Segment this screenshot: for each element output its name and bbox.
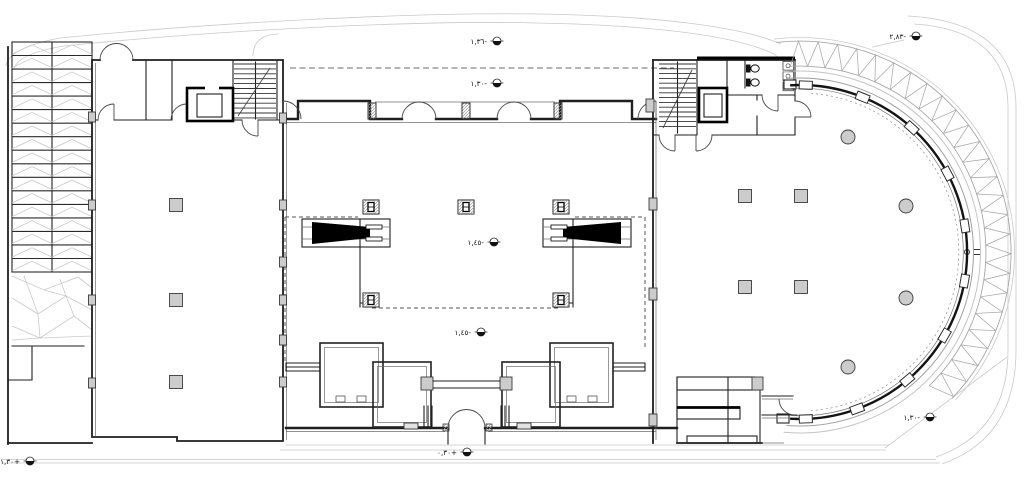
level-marker-terrace-northeast: ٢,٨٣- (890, 32, 923, 41)
benchmark-icon (924, 413, 937, 421)
wall-pilaster (649, 198, 657, 210)
terrace-arc-outer (784, 71, 981, 433)
wall-pilaster (89, 200, 96, 210)
level-marker-atrium: ١,٤٥- (468, 238, 501, 247)
storefront-pilaster-3 (554, 103, 562, 119)
level-marker-text: ١,٤٥- (455, 328, 472, 337)
level-marker-text: ١,٣٦- (471, 37, 488, 46)
column-round (899, 199, 913, 213)
wall-pilaster (280, 113, 287, 123)
level-marker-sidewalk-southwest: ١,٣٠+ (0, 457, 36, 466)
column-square (739, 281, 752, 294)
column-round (899, 291, 913, 305)
benchmark-icon (491, 37, 504, 45)
landscape-triangulation (12, 276, 92, 340)
wall-pilaster (280, 200, 287, 210)
column-hatched (553, 200, 569, 214)
escalator-west (302, 219, 390, 247)
curtain-wall-inner-face (791, 88, 963, 416)
site-corner-ne-inner (914, 24, 1008, 457)
wc-sink (783, 72, 794, 81)
benchmark-icon (461, 448, 474, 456)
curtain-mullion (959, 274, 969, 288)
column-square (170, 294, 183, 307)
level-marker-text: ٢,٨٣- (890, 32, 907, 41)
elevator-west-shaft (187, 88, 233, 121)
marker-leader-ne (872, 40, 904, 47)
curtain-mullion (960, 219, 970, 233)
storefront-pilaster-1 (368, 103, 376, 119)
hatch-band-outer-arc (776, 41, 1011, 399)
level-marker-text: ١,٤٥- (468, 238, 485, 247)
benchmark-icon (24, 457, 37, 465)
curtain-mullion (850, 403, 865, 415)
floor-plan-canvas: ١,٣٦-١,٣٠-١,٤٥-١,٤٥-٢,٨٣-١,٣٠-١,٣٠+٠,٣٠+ (0, 0, 1024, 477)
wall-pilaster (280, 335, 287, 345)
site-corner-ne-outer (908, 16, 1016, 464)
wall-pilaster (649, 414, 657, 426)
south-cluster-east (502, 343, 613, 427)
entry-jamb-west (443, 424, 449, 431)
level-marker-plaza-southeast: ١,٣٠- (904, 413, 937, 422)
benchmark-icon (488, 238, 501, 246)
column-square (170, 199, 183, 212)
wc-toilet-1 (746, 65, 759, 73)
curtain-mullion (799, 81, 812, 89)
site-top-edge-outer (6, 14, 781, 66)
south-cluster-west (320, 343, 431, 427)
floor-plan-stage: ١,٣٦-١,٣٠-١,٤٥-١,٤٥-٢,٨٣-١,٣٠-١,٣٠+٠,٣٠+ (0, 0, 1024, 477)
south-cluster-links (286, 363, 645, 427)
curtain-mullion (799, 415, 812, 423)
column-hatched (363, 200, 379, 214)
column-square (170, 376, 183, 389)
level-marker-text: ٠,٣٠+ (437, 448, 457, 457)
door-leaf-plate-west (404, 423, 418, 429)
column-hatched (363, 293, 379, 307)
entry-jamb-walls (448, 428, 485, 444)
column-hatched (553, 293, 569, 307)
wall-pilaster (280, 295, 287, 305)
level-marker-canopy-lower: ١,٣٠- (471, 79, 504, 88)
wall-pilaster (89, 112, 96, 122)
level-marker-text: ١,٣٠- (471, 79, 488, 88)
atrium-inner-edge (360, 219, 573, 307)
wall-pilaster (89, 295, 96, 305)
column-round (841, 130, 855, 144)
escalator-east (543, 219, 631, 247)
canopy-corner (253, 34, 278, 56)
south-east-core (677, 377, 797, 443)
level-marker-atrium-south: ١,٤٥- (455, 328, 488, 337)
benchmark-icon (910, 32, 923, 40)
wall-pilaster (89, 378, 96, 388)
entry-jamb-east (486, 424, 492, 431)
landscape-hatch-band (774, 37, 1015, 399)
column-square (795, 190, 808, 203)
level-marker-text: ١,٣٠- (904, 413, 921, 422)
north-entry-door-arcs (100, 44, 133, 61)
column-hatched (458, 200, 474, 214)
curtain-wall-layer (784, 71, 981, 433)
curtain-mullion (855, 91, 870, 103)
level-marker-canopy-upper: ١,٣٦- (471, 37, 504, 46)
east-core-door-arcs (659, 95, 811, 151)
benchmark-icon (491, 79, 504, 87)
south-entry-door-arcs (448, 410, 485, 429)
wc-toilet-2 (746, 79, 759, 87)
storefront-north-wall (286, 101, 656, 119)
door-leaf-plate-east (517, 423, 531, 429)
column-round (841, 360, 855, 374)
wall-pilaster (280, 257, 287, 267)
level-marker-entrance-south: ٠,٣٠+ (437, 448, 473, 457)
column-square (739, 190, 752, 203)
site-boundary (2, 14, 1016, 464)
benchmark-icon (475, 328, 488, 336)
curtain-wall-glass-arc (790, 85, 967, 419)
storefront-pilaster-2 (462, 103, 470, 119)
ramp-lower-walls (8, 346, 84, 380)
level-marker-text: ١,٣٠+ (0, 457, 20, 466)
ramp-west (8, 42, 92, 444)
level-markers-layer: ١,٣٦-١,٣٠-١,٤٥-١,٤٥-٢,٨٣-١,٣٠-١,٣٠+٠,٣٠+ (0, 32, 936, 466)
site-top-edge-inner (14, 22, 774, 70)
column-square (795, 281, 808, 294)
floor-edge-dashed-arc (811, 93, 959, 410)
pilaster-core-west (646, 99, 654, 112)
stair-west-run-line (238, 68, 270, 116)
block-center (283, 101, 677, 444)
wall-pilaster (280, 377, 287, 387)
wall-pilaster (649, 288, 657, 300)
